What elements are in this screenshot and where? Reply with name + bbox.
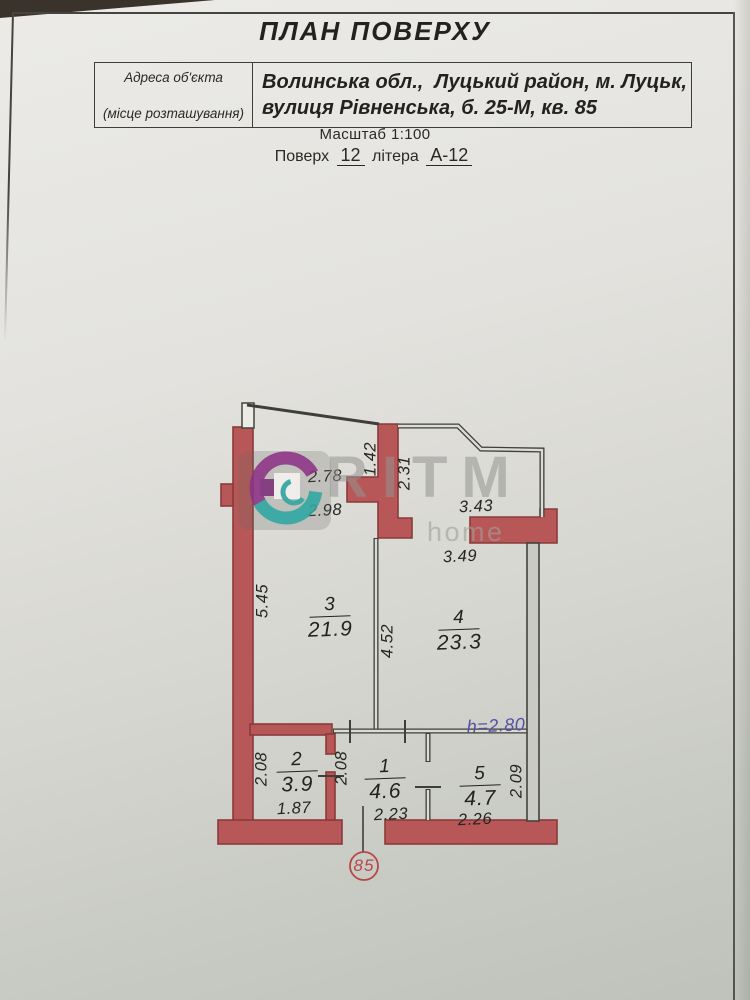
room-area: 4.6 xyxy=(369,778,402,804)
dim-2-26: 2.26 xyxy=(458,810,493,830)
ceiling-height-note: h=2.80 xyxy=(466,714,525,738)
dim-1-87: 1.87 xyxy=(277,799,312,819)
ritm-logo-icon xyxy=(244,446,328,530)
dim-2-08-mid: 2.08 xyxy=(333,751,352,785)
apartment-number: 85 xyxy=(354,856,375,876)
dim-2-23: 2.23 xyxy=(374,805,409,825)
room-number: 1 xyxy=(364,756,405,779)
room-area: 21.9 xyxy=(308,616,354,643)
dim-5-45: 5.45 xyxy=(254,584,273,618)
sloped-wall xyxy=(247,405,379,424)
room-label-1: 1 4.6 xyxy=(364,756,406,805)
watermark-sub: home xyxy=(427,517,505,548)
dim-3-49: 3.49 xyxy=(443,547,478,567)
room-area: 3.9 xyxy=(281,771,314,797)
room-number: 5 xyxy=(459,763,500,786)
room-label-5: 5 4.7 xyxy=(459,763,501,812)
room-label-3: 3 21.9 xyxy=(307,594,353,643)
gray-wall xyxy=(527,543,539,821)
dim-2-08-left: 2.08 xyxy=(253,752,272,786)
dim-4-52: 4.52 xyxy=(379,624,398,658)
dim-2-09: 2.09 xyxy=(508,764,527,798)
room-area: 4.7 xyxy=(464,785,497,811)
watermark-brand: RITM xyxy=(326,444,524,511)
room-area: 23.3 xyxy=(437,629,483,656)
room-label-4: 4 23.3 xyxy=(436,607,482,656)
room-number: 3 xyxy=(309,594,350,617)
room-number: 4 xyxy=(438,607,479,630)
room-label-2: 2 3.9 xyxy=(276,749,318,798)
document-photo: ПЛАН ПОВЕРХУ Адреса об'єкта (місце розта… xyxy=(0,0,750,1000)
room-number: 2 xyxy=(276,749,317,772)
